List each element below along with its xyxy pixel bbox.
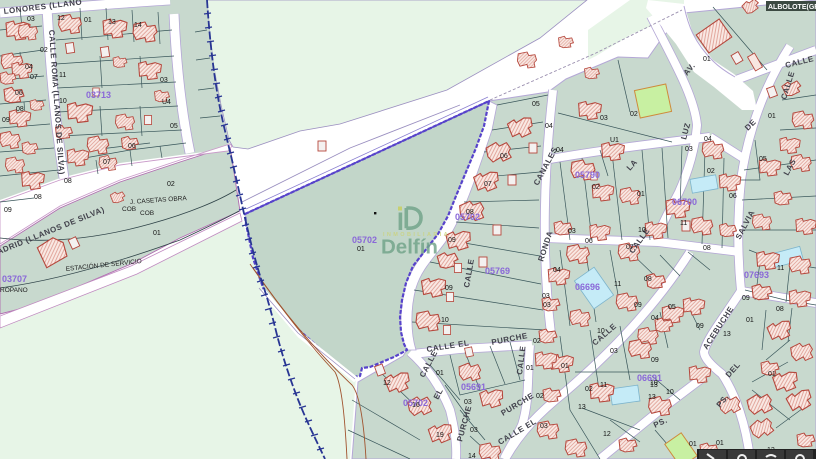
- svg-text:19: 19: [436, 432, 444, 439]
- svg-text:U1: U1: [610, 137, 619, 144]
- svg-text:12: 12: [603, 431, 611, 438]
- svg-text:13: 13: [108, 19, 116, 26]
- svg-text:01: 01: [746, 317, 754, 324]
- svg-text:05: 05: [759, 156, 767, 163]
- svg-text:07693: 07693: [744, 270, 769, 280]
- svg-text:11: 11: [600, 382, 607, 389]
- svg-text:01: 01: [561, 363, 569, 370]
- svg-text:13: 13: [723, 331, 731, 338]
- svg-text:Delfín: Delfín: [381, 236, 438, 259]
- svg-text:04: 04: [651, 315, 659, 322]
- svg-text:08: 08: [703, 245, 711, 252]
- svg-text:10: 10: [666, 389, 674, 396]
- svg-text:01: 01: [526, 365, 534, 372]
- svg-text:07: 07: [103, 159, 111, 166]
- svg-text:02: 02: [585, 386, 593, 393]
- svg-text:03: 03: [464, 399, 472, 406]
- svg-text:ALBOLOTE(GR: ALBOLOTE(GR: [768, 4, 816, 11]
- svg-text:03: 03: [542, 293, 550, 300]
- svg-text:01: 01: [153, 230, 161, 237]
- svg-text:08: 08: [776, 306, 784, 313]
- svg-text:11: 11: [777, 265, 784, 272]
- svg-text:06700: 06700: [672, 197, 697, 207]
- svg-text:06: 06: [15, 90, 23, 97]
- svg-text:ROPANO: ROPANO: [0, 287, 28, 294]
- svg-text:COB: COB: [122, 206, 136, 213]
- svg-text:08: 08: [64, 178, 72, 185]
- svg-text:05769: 05769: [485, 266, 510, 276]
- svg-text:03713: 03713: [86, 90, 111, 100]
- svg-text:10: 10: [638, 227, 646, 234]
- svg-text:10: 10: [59, 98, 67, 105]
- svg-text:03: 03: [470, 427, 478, 434]
- svg-text:01: 01: [436, 370, 444, 377]
- svg-text:COB: COB: [140, 210, 154, 217]
- svg-text:01: 01: [637, 191, 645, 198]
- svg-text:04: 04: [545, 123, 553, 130]
- svg-text:U4: U4: [162, 99, 171, 106]
- svg-text:06: 06: [128, 143, 136, 150]
- svg-text:02: 02: [630, 111, 638, 118]
- svg-text:06: 06: [500, 153, 508, 160]
- svg-text:02: 02: [536, 393, 544, 400]
- svg-text:13: 13: [578, 404, 586, 411]
- svg-text:08: 08: [466, 209, 474, 216]
- svg-text:14: 14: [134, 22, 142, 29]
- svg-text:01: 01: [357, 246, 365, 253]
- svg-text:03: 03: [160, 77, 168, 84]
- svg-text:02: 02: [167, 181, 175, 188]
- svg-text:01: 01: [689, 441, 697, 448]
- svg-text:03707: 03707: [2, 274, 27, 284]
- svg-text:06696: 06696: [575, 282, 600, 292]
- svg-text:11: 11: [680, 220, 687, 227]
- svg-text:05: 05: [668, 304, 676, 311]
- svg-text:09: 09: [2, 117, 10, 124]
- svg-text:04: 04: [25, 64, 33, 71]
- svg-text:10: 10: [441, 317, 449, 324]
- svg-text:13: 13: [650, 382, 658, 389]
- svg-text:05: 05: [170, 123, 178, 130]
- svg-text:09: 09: [651, 357, 659, 364]
- svg-text:03: 03: [27, 16, 35, 23]
- svg-text:01: 01: [703, 56, 711, 63]
- svg-text:05691: 05691: [461, 382, 486, 392]
- svg-text:03: 03: [685, 146, 693, 153]
- svg-text:01: 01: [716, 440, 724, 447]
- svg-text:07: 07: [484, 181, 492, 188]
- svg-text:09: 09: [448, 237, 456, 244]
- svg-text:03: 03: [543, 302, 551, 309]
- svg-text:04: 04: [556, 147, 564, 154]
- svg-text:03: 03: [610, 348, 618, 355]
- svg-text:07: 07: [626, 244, 634, 251]
- svg-text:09: 09: [696, 323, 704, 330]
- svg-text:03: 03: [540, 423, 548, 430]
- svg-text:05790: 05790: [575, 170, 600, 180]
- svg-text:09: 09: [445, 285, 453, 292]
- svg-text:06: 06: [729, 193, 737, 200]
- svg-text:08: 08: [16, 106, 24, 113]
- svg-text:16: 16: [412, 402, 420, 409]
- svg-text:12: 12: [383, 380, 391, 387]
- svg-text:05: 05: [532, 101, 540, 108]
- svg-text:05702: 05702: [352, 235, 377, 245]
- svg-text:03: 03: [568, 228, 576, 235]
- svg-text:12: 12: [57, 15, 65, 22]
- svg-text:09: 09: [4, 207, 12, 214]
- svg-text:01: 01: [768, 113, 776, 120]
- svg-text:09: 09: [742, 295, 750, 302]
- svg-text:03: 03: [600, 115, 608, 122]
- svg-text:04: 04: [704, 136, 712, 143]
- svg-text:08: 08: [34, 194, 42, 201]
- svg-text:08: 08: [644, 276, 652, 283]
- svg-text:01: 01: [768, 371, 776, 378]
- svg-text:04: 04: [553, 267, 561, 274]
- svg-text:10: 10: [597, 328, 605, 335]
- svg-text:14: 14: [468, 453, 476, 459]
- svg-text:07: 07: [30, 74, 38, 81]
- svg-text:02: 02: [707, 168, 715, 175]
- svg-text:01: 01: [84, 17, 92, 24]
- svg-text:11: 11: [59, 72, 66, 79]
- svg-text:02: 02: [40, 47, 48, 54]
- svg-text:02: 02: [533, 338, 541, 345]
- svg-text:09: 09: [634, 302, 642, 309]
- svg-text:11: 11: [614, 281, 621, 288]
- svg-text:02: 02: [592, 184, 600, 191]
- svg-text:06: 06: [585, 238, 593, 245]
- svg-text:13: 13: [648, 394, 656, 401]
